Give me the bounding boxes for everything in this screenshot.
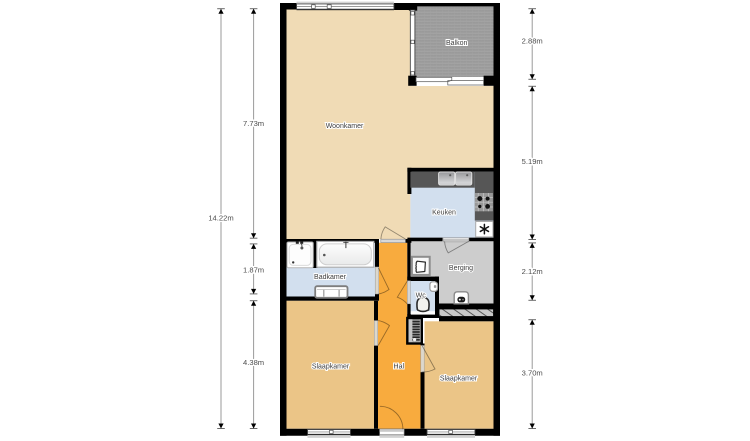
svg-text:4.38m: 4.38m (243, 358, 264, 367)
svg-text:3.70m: 3.70m (522, 368, 543, 377)
svg-text:Balkon: Balkon (446, 40, 468, 47)
svg-text:2.88m: 2.88m (522, 37, 543, 46)
svg-text:Badkamer: Badkamer (314, 274, 347, 281)
svg-text:5.19m: 5.19m (522, 157, 543, 166)
svg-text:1.87m: 1.87m (243, 266, 264, 275)
svg-text:7.73m: 7.73m (243, 119, 264, 128)
svg-text:Wc: Wc (416, 293, 427, 300)
svg-text:Hal: Hal (394, 364, 405, 371)
svg-text:Woonkamer: Woonkamer (326, 123, 364, 130)
svg-text:2.12m: 2.12m (522, 267, 543, 276)
svg-text:14.22m: 14.22m (208, 214, 233, 223)
svg-text:Berging: Berging (449, 265, 473, 272)
svg-text:Keuken: Keuken (432, 210, 456, 217)
svg-text:Slaapkamer: Slaapkamer (312, 363, 350, 370)
svg-text:Slaapkamer: Slaapkamer (440, 376, 478, 383)
